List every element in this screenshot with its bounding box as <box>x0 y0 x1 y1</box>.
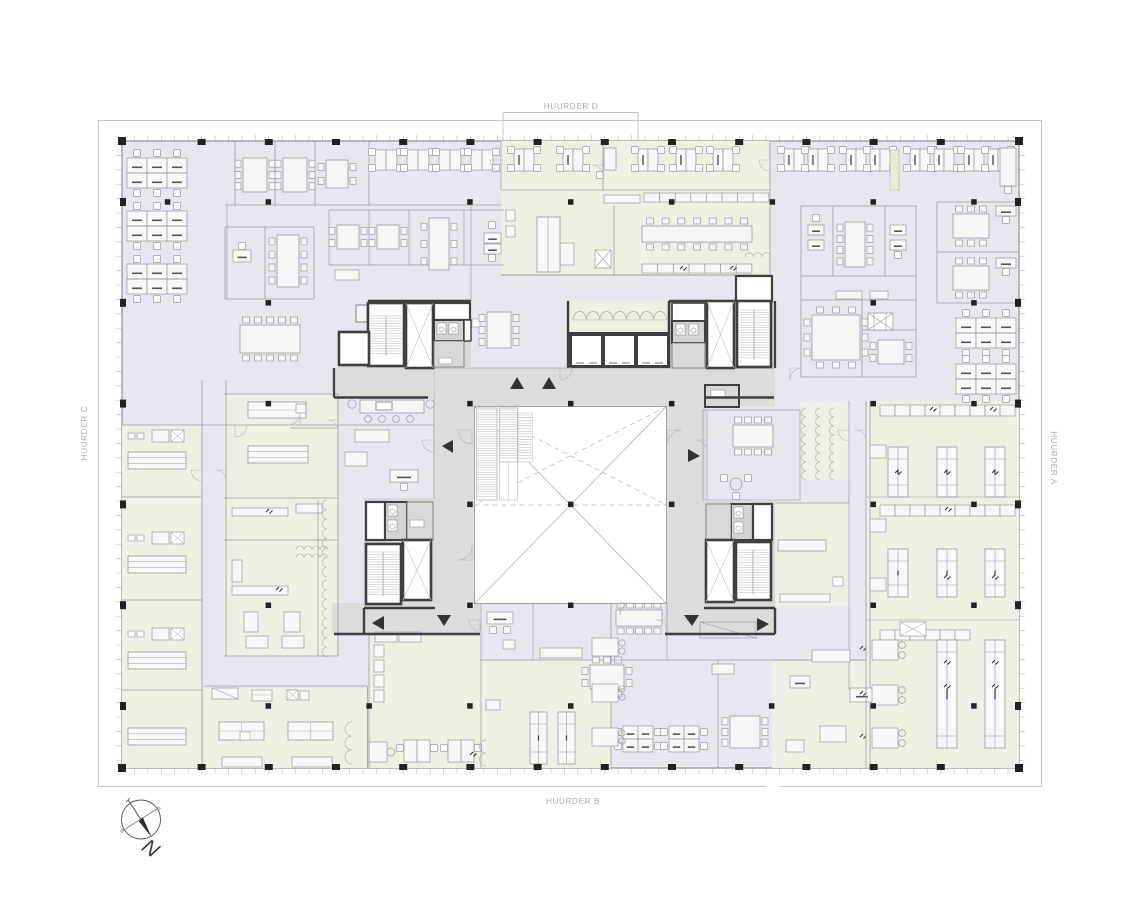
svg-text:HUURDER A: HUURDER A <box>1049 431 1058 485</box>
svg-text:HUURDER C: HUURDER C <box>80 406 89 461</box>
svg-text:HUURDER B: HUURDER B <box>546 797 600 806</box>
svg-text:HUURDER D: HUURDER D <box>544 102 599 111</box>
